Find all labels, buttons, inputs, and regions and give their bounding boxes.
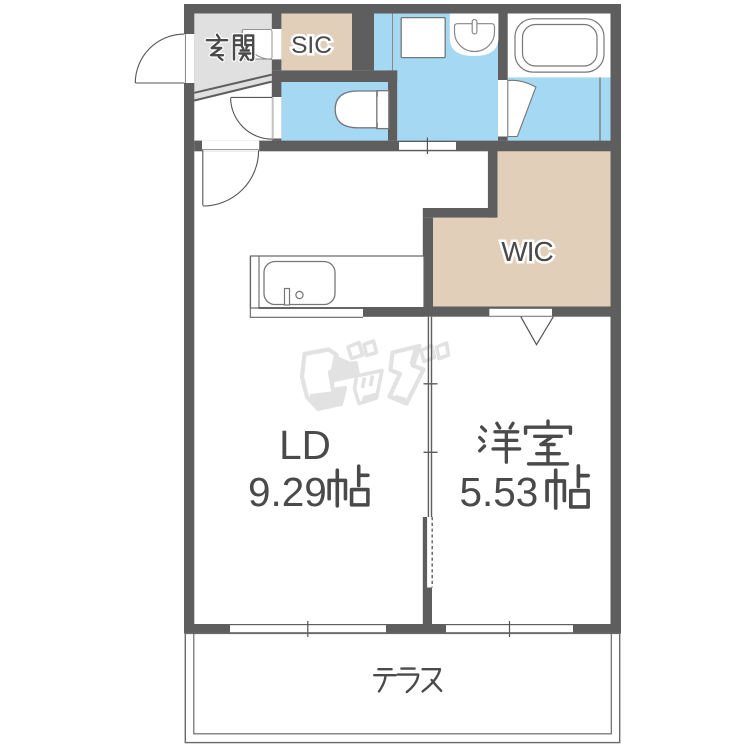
svg-text:WIC: WIC [501,236,553,267]
svg-text:9.29: 9.29 [248,469,327,515]
svg-text:5.53: 5.53 [460,469,539,515]
svg-text:SIC: SIC [291,32,332,59]
svg-text:LD: LD [279,422,331,468]
